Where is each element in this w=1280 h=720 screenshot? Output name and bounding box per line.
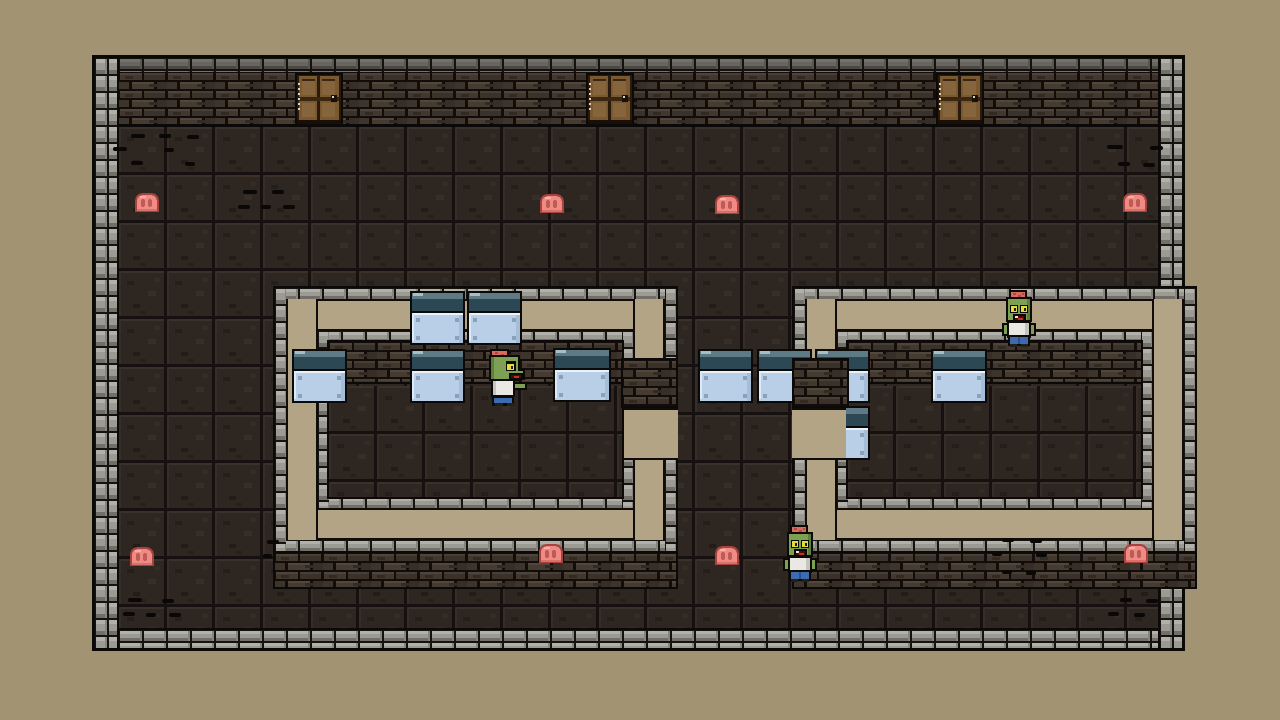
flesh-blob[interactable] [133, 191, 161, 213]
floor-crack [261, 205, 271, 209]
floor-crack [1026, 571, 1036, 575]
doorway-brick-block [621, 358, 678, 408]
floor-crack [159, 134, 171, 138]
counter-table [292, 349, 347, 403]
floor-crack [243, 190, 257, 194]
flesh-blob[interactable] [537, 542, 565, 564]
floor-crack [131, 134, 145, 138]
wooden-door[interactable] [586, 73, 634, 126]
doorway-brick-block [792, 358, 849, 408]
floor-crack [272, 190, 284, 194]
counter-table [467, 291, 522, 345]
floor-crack [131, 161, 143, 165]
floor-crack [1107, 145, 1123, 149]
floor-crack [164, 148, 174, 152]
floor-crack [1120, 598, 1132, 602]
counter-table [553, 348, 611, 402]
flesh-blob[interactable] [128, 545, 156, 567]
counter-table [931, 349, 987, 403]
floor-crack [162, 599, 174, 603]
floor-crack [1143, 163, 1155, 167]
floor-crack [185, 162, 195, 166]
floor-crack [238, 205, 250, 209]
floor-crack [1134, 613, 1145, 617]
floor-crack [1118, 162, 1130, 166]
floor-crack [187, 135, 199, 139]
flesh-blob[interactable] [1122, 542, 1150, 564]
floor-crack [267, 540, 279, 544]
floor-crack [1030, 539, 1042, 543]
floor-crack [128, 598, 142, 602]
floor-crack [1150, 146, 1163, 150]
counter-table [698, 349, 753, 403]
floor-crack [992, 552, 1002, 556]
zombie-front[interactable] [782, 525, 818, 583]
doorway-gap [624, 408, 678, 460]
flesh-blob[interactable] [713, 544, 741, 566]
floor-crack [146, 613, 156, 617]
floor-crack [1002, 570, 1012, 574]
floor-crack [1002, 538, 1014, 542]
zombie-side[interactable] [483, 349, 527, 407]
floor-crack [123, 612, 135, 616]
floor-crack [1108, 612, 1119, 616]
game-viewport [0, 0, 1280, 720]
zombie-front[interactable] [1001, 290, 1037, 348]
doorway-gap [792, 408, 846, 460]
flesh-blob[interactable] [713, 193, 741, 215]
floor-crack [263, 554, 272, 558]
floor-crack [283, 205, 295, 209]
counter-table [410, 291, 465, 345]
floor-crack [1146, 599, 1158, 603]
wooden-door[interactable] [936, 73, 984, 126]
counter-table [410, 349, 465, 403]
floor-crack [1036, 553, 1047, 557]
floor-crack [169, 613, 181, 617]
flesh-blob[interactable] [538, 192, 566, 214]
floor-crack [113, 147, 127, 151]
flesh-blob[interactable] [1121, 191, 1149, 213]
wooden-door[interactable] [295, 73, 343, 126]
